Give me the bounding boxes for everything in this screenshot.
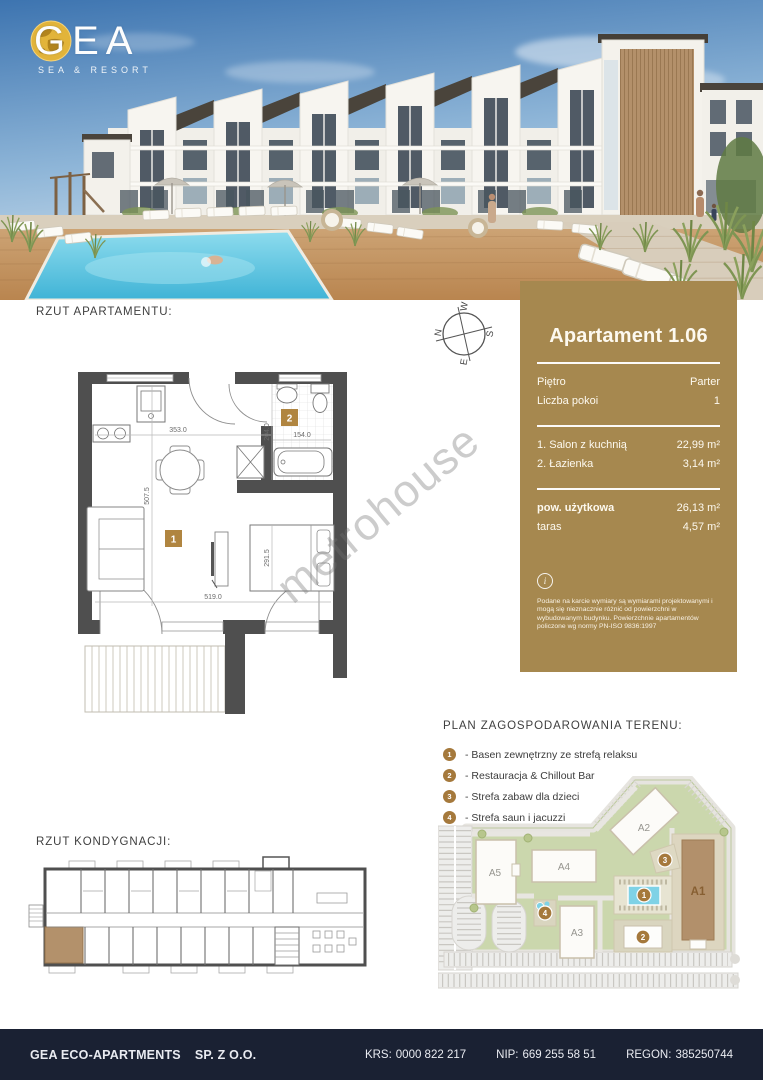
compass-e: E — [459, 358, 471, 366]
divider — [537, 425, 720, 427]
label-a3: A3 — [571, 928, 584, 939]
regon-value: 385250744 — [675, 1049, 733, 1061]
row-value: 4,57 m² — [683, 518, 720, 537]
dim-bath-height: 204.0 — [264, 423, 271, 441]
row-label: Piętro — [537, 373, 566, 392]
dim-room-height: 507.5 — [144, 487, 151, 505]
site-marker-3: 3 — [663, 856, 668, 865]
room-1-tag: 1 — [171, 535, 177, 546]
info-rows: Piętro Parter Liczba pokoi 1 — [537, 373, 720, 411]
logo-tagline: SEA & RESORT — [28, 65, 152, 75]
room-row-bathroom: 2. Łazienka 3,14 m² — [537, 455, 720, 474]
row-value: 22,99 m² — [677, 436, 720, 455]
room-row-salon: 1. Salon z kuchnią 22,99 m² — [537, 436, 720, 455]
regon: REGON:385250744 — [622, 1049, 733, 1061]
panel-disclaimer-block: i Podane na karcie wymiary są wymiarami … — [537, 573, 720, 632]
gea-logo: GEA SEA & RESORT — [28, 18, 152, 75]
compass-icon: N W S E — [430, 300, 498, 368]
compass-w: W — [459, 301, 471, 312]
row-label: taras — [537, 518, 561, 537]
label-a2: A2 — [638, 823, 651, 834]
external-stair — [29, 905, 43, 927]
info-row-floor: Piętro Parter — [537, 373, 720, 392]
divider — [537, 488, 720, 490]
row-label: 2. Łazienka — [537, 455, 593, 474]
label-a4: A4 — [558, 862, 571, 873]
registry-numbers: KRS:0000 822 217 NIP:669 255 58 51 REGON… — [361, 1049, 733, 1061]
divider — [537, 362, 720, 364]
nip: NIP:669 255 58 51 — [492, 1049, 596, 1061]
nip-label: NIP: — [496, 1049, 518, 1061]
legend-item-pool: 1 - Basen zewnętrzny ze strefą relaksu — [443, 744, 637, 765]
regon-label: REGON: — [626, 1049, 671, 1061]
legend-label: - Basen zewnętrzny ze strefą relaksu — [465, 749, 637, 761]
site-map: A5 A4 A2 A3 A1 1 2 3 4 — [438, 776, 763, 1008]
legend-marker-1: 1 — [443, 748, 456, 761]
dining-table — [156, 446, 204, 494]
sofa — [87, 507, 144, 591]
apartment-floor-plan: 353.0 507.5 204.0 154.0 291.5 519.0 1 2 — [75, 362, 365, 717]
floor-layout-heading: RZUT KONDYGNACJI: — [36, 836, 171, 848]
terrace — [85, 646, 225, 712]
summary-row-terrace: taras 4,57 m² — [537, 518, 720, 537]
summary-row-usable-area: pow. użytkowa 26,13 m² — [537, 499, 720, 518]
room-rows: 1. Salon z kuchnią 22,99 m² 2. Łazienka … — [537, 436, 720, 474]
krs-value: 0000 822 217 — [396, 1049, 466, 1061]
label-a1: A1 — [691, 886, 706, 898]
dim-bed-width: 291.5 — [264, 549, 271, 567]
disclaimer-text: Podane na karcie wymiary są wymiarami pr… — [537, 598, 720, 632]
apartment-plan-heading: RZUT APARTAMENTU: — [36, 306, 173, 318]
row-value: Parter — [690, 373, 720, 392]
row-value: 3,14 m² — [683, 455, 720, 474]
apartment-title: Apartament 1.06 — [537, 281, 720, 348]
row-value: 1 — [714, 392, 720, 411]
krs-label: KRS: — [365, 1049, 392, 1061]
bed — [250, 525, 334, 591]
site-marker-2: 2 — [641, 933, 646, 942]
kitchen-fixtures — [93, 386, 165, 442]
row-label: Liczba pokoi — [537, 392, 598, 411]
company-name: GEA ECO-APARTMENTSSP. Z O.O. — [30, 1048, 256, 1062]
tv-unit — [211, 532, 228, 588]
row-label: 1. Salon z kuchnią — [537, 436, 627, 455]
nip-value: 669 255 58 51 — [523, 1049, 597, 1061]
logo-wordmark: GEA — [34, 19, 139, 64]
footer-bar: GEA ECO-APARTMENTSSP. Z O.O. KRS:0000 82… — [0, 1029, 763, 1080]
dim-top-width: 353.0 — [169, 427, 187, 434]
company-suffix: SP. Z O.O. — [195, 1048, 257, 1062]
row-label: pow. użytkowa — [537, 499, 614, 518]
krs: KRS:0000 822 217 — [361, 1049, 466, 1061]
washing-machine — [237, 446, 264, 478]
site-plan-heading: PLAN ZAGOSPODAROWANIA TERENU: — [443, 720, 683, 732]
info-row-rooms: Liczba pokoi 1 — [537, 392, 720, 411]
company: GEA ECO-APARTMENTS — [30, 1048, 181, 1062]
highlighted-unit — [45, 927, 83, 963]
stairwell — [275, 927, 299, 965]
site-marker-1: 1 — [642, 891, 647, 900]
dim-bottom-width: 519.0 — [204, 594, 222, 601]
row-value: 26,13 m² — [677, 499, 720, 518]
apartment-info-card: Apartament 1.06 Piętro Parter Liczba pok… — [520, 281, 737, 672]
compass-s: S — [485, 330, 497, 338]
summary-rows: pow. użytkowa 26,13 m² taras 4,57 m² — [537, 499, 720, 537]
dim-bath-width: 154.0 — [293, 432, 311, 439]
brochure-page: GEA SEA & RESORT RZUT APARTAMENTU: — [0, 0, 763, 1080]
room-2-tag: 2 — [287, 414, 293, 425]
label-a5: A5 — [489, 868, 502, 879]
site-marker-4: 4 — [543, 909, 548, 918]
info-icon: i — [537, 573, 553, 589]
storey-plan — [25, 855, 375, 995]
